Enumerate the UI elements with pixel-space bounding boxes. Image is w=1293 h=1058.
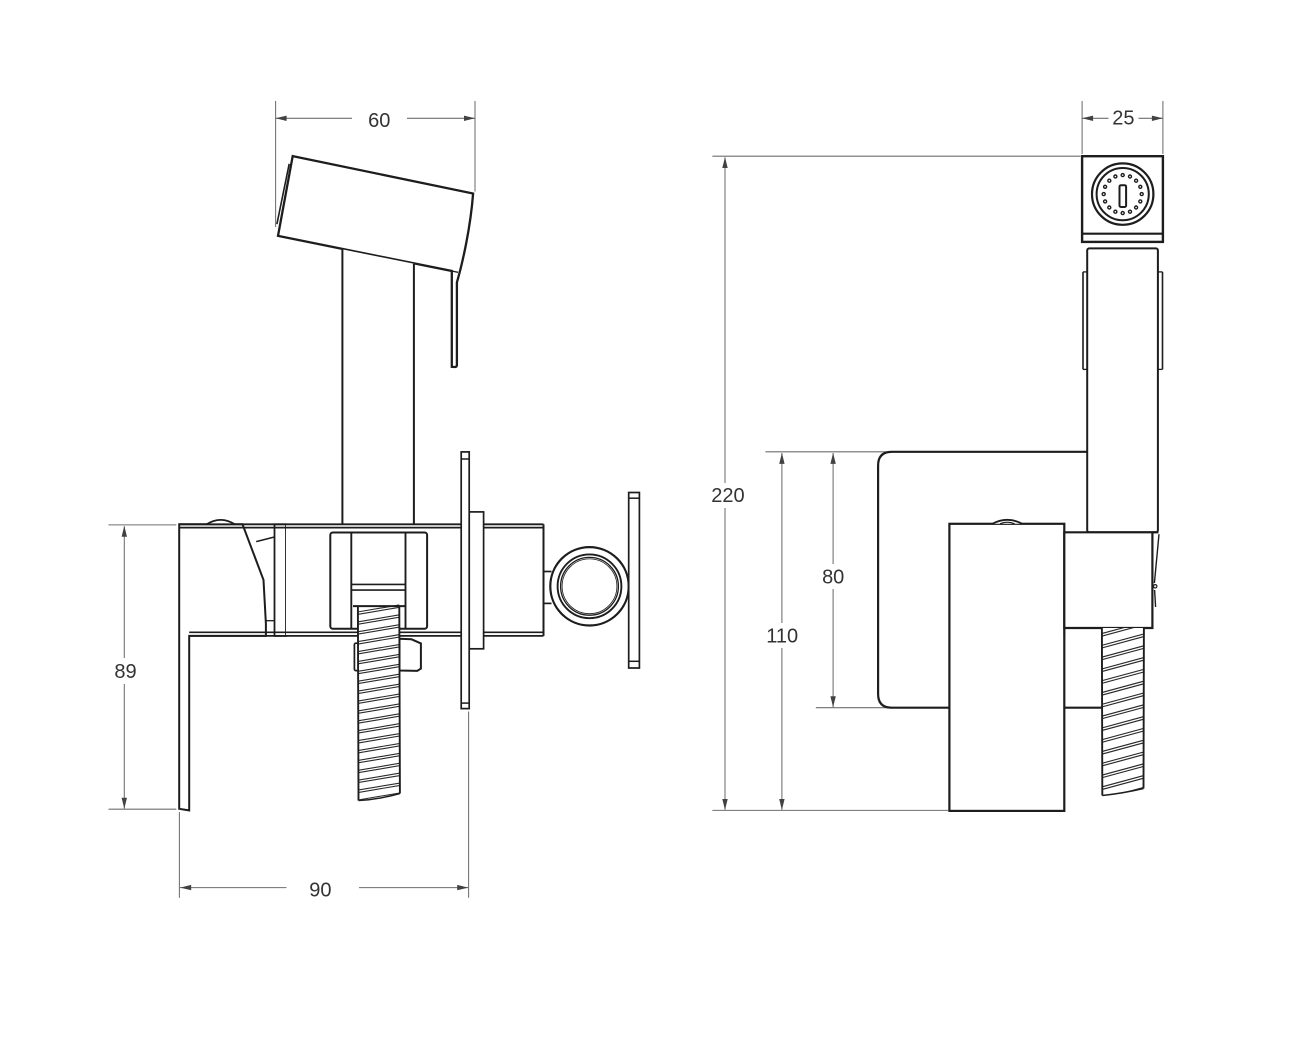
svg-text:90: 90 [309,879,331,901]
svg-text:25: 25 [1112,108,1134,130]
svg-text:110: 110 [766,626,798,648]
svg-text:80: 80 [822,567,844,589]
svg-text:89: 89 [114,661,136,683]
svg-text:60: 60 [368,110,390,132]
svg-text:220: 220 [711,485,744,507]
